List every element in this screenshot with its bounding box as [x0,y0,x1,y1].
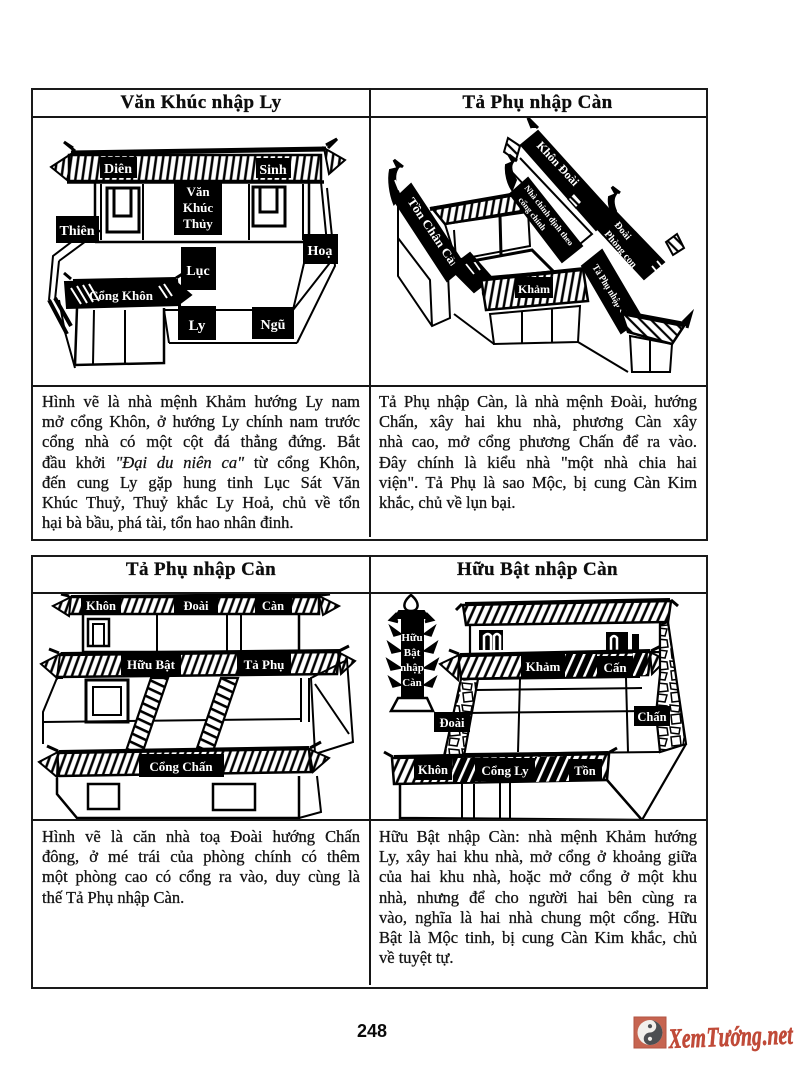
svg-text:Bật: Bật [404,647,421,659]
svg-text:Khảm: Khảm [526,659,561,674]
svg-text:Chấn: Chấn [637,710,666,724]
svg-text:Ngũ: Ngũ [261,318,286,333]
svg-text:XemTướng.net: XemTướng.net [667,1020,794,1055]
svg-text:Lục: Lục [186,264,209,279]
svg-text:Tồn: Tồn [574,764,596,778]
svg-text:Hữu: Hữu [401,632,422,644]
svg-text:Tả Phụ: Tả Phụ [244,657,285,672]
svg-text:Diên: Diên [104,162,132,177]
svg-text:Văn: Văn [186,184,210,199]
svg-text:Khúc: Khúc [183,200,214,215]
svg-text:Ly: Ly [189,318,206,334]
svg-text:nhập: nhập [400,662,424,674]
svg-text:Cổng Chấn: Cổng Chấn [149,759,213,774]
svg-text:Thiên: Thiên [59,224,94,239]
svg-text:Sinh: Sinh [259,163,286,178]
svg-text:Thủy: Thủy [183,216,213,231]
svg-text:Cổng Khôn: Cổng Khôn [89,288,154,303]
svg-text:Hoạ: Hoạ [308,244,333,259]
svg-text:Đoài: Đoài [184,599,210,613]
svg-text:Khảm: Khảm [518,282,550,296]
svg-text:Khôn: Khôn [418,763,448,777]
svg-text:Cổng Ly: Cổng Ly [481,763,529,778]
svg-text:Cấn: Cấn [603,660,627,675]
svg-text:Càn: Càn [402,677,422,689]
svg-text:Càn: Càn [262,599,284,613]
svg-text:Hữu Bật: Hữu Bật [127,657,176,672]
svg-text:Đoài: Đoài [440,716,466,730]
svg-text:Khôn: Khôn [86,599,116,613]
